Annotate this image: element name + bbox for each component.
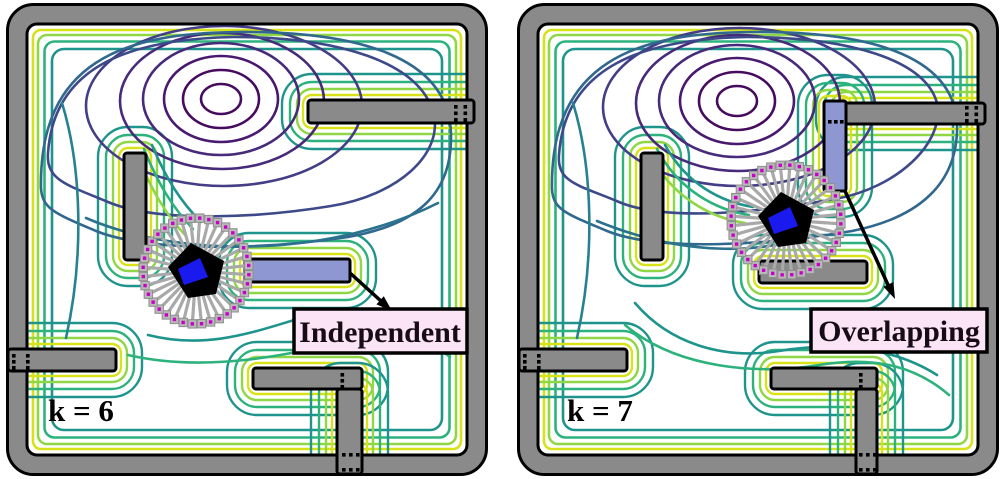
k-label: k = 6 — [48, 393, 114, 428]
obstacle-vertical-bar — [641, 153, 663, 260]
new-obstacle-independent — [245, 259, 350, 282]
k-label: k = 7 — [567, 393, 633, 428]
panel-overlapping-k7: Overlapping k = 7 — [517, 3, 999, 476]
obstacle-right-wall-bar — [842, 103, 985, 124]
panel-independent-k6: Independent k = 6 — [6, 3, 488, 476]
obstacle-left-wall-bar — [8, 349, 116, 371]
robot — [139, 214, 253, 328]
obstacle-t-vertical — [856, 389, 877, 474]
annotation-label: Independent — [299, 316, 461, 349]
figure-canvas: Independent k = 6 — [0, 0, 1000, 479]
annotation-label: Overlapping — [818, 315, 980, 348]
obstacle-vertical-bar — [124, 153, 146, 260]
obstacle-t-vertical — [337, 389, 362, 474]
obstacle-t-horizontal — [253, 368, 362, 389]
obstacle-right-wall-bar — [308, 100, 474, 123]
obstacle-left-wall-bar — [519, 349, 627, 371]
